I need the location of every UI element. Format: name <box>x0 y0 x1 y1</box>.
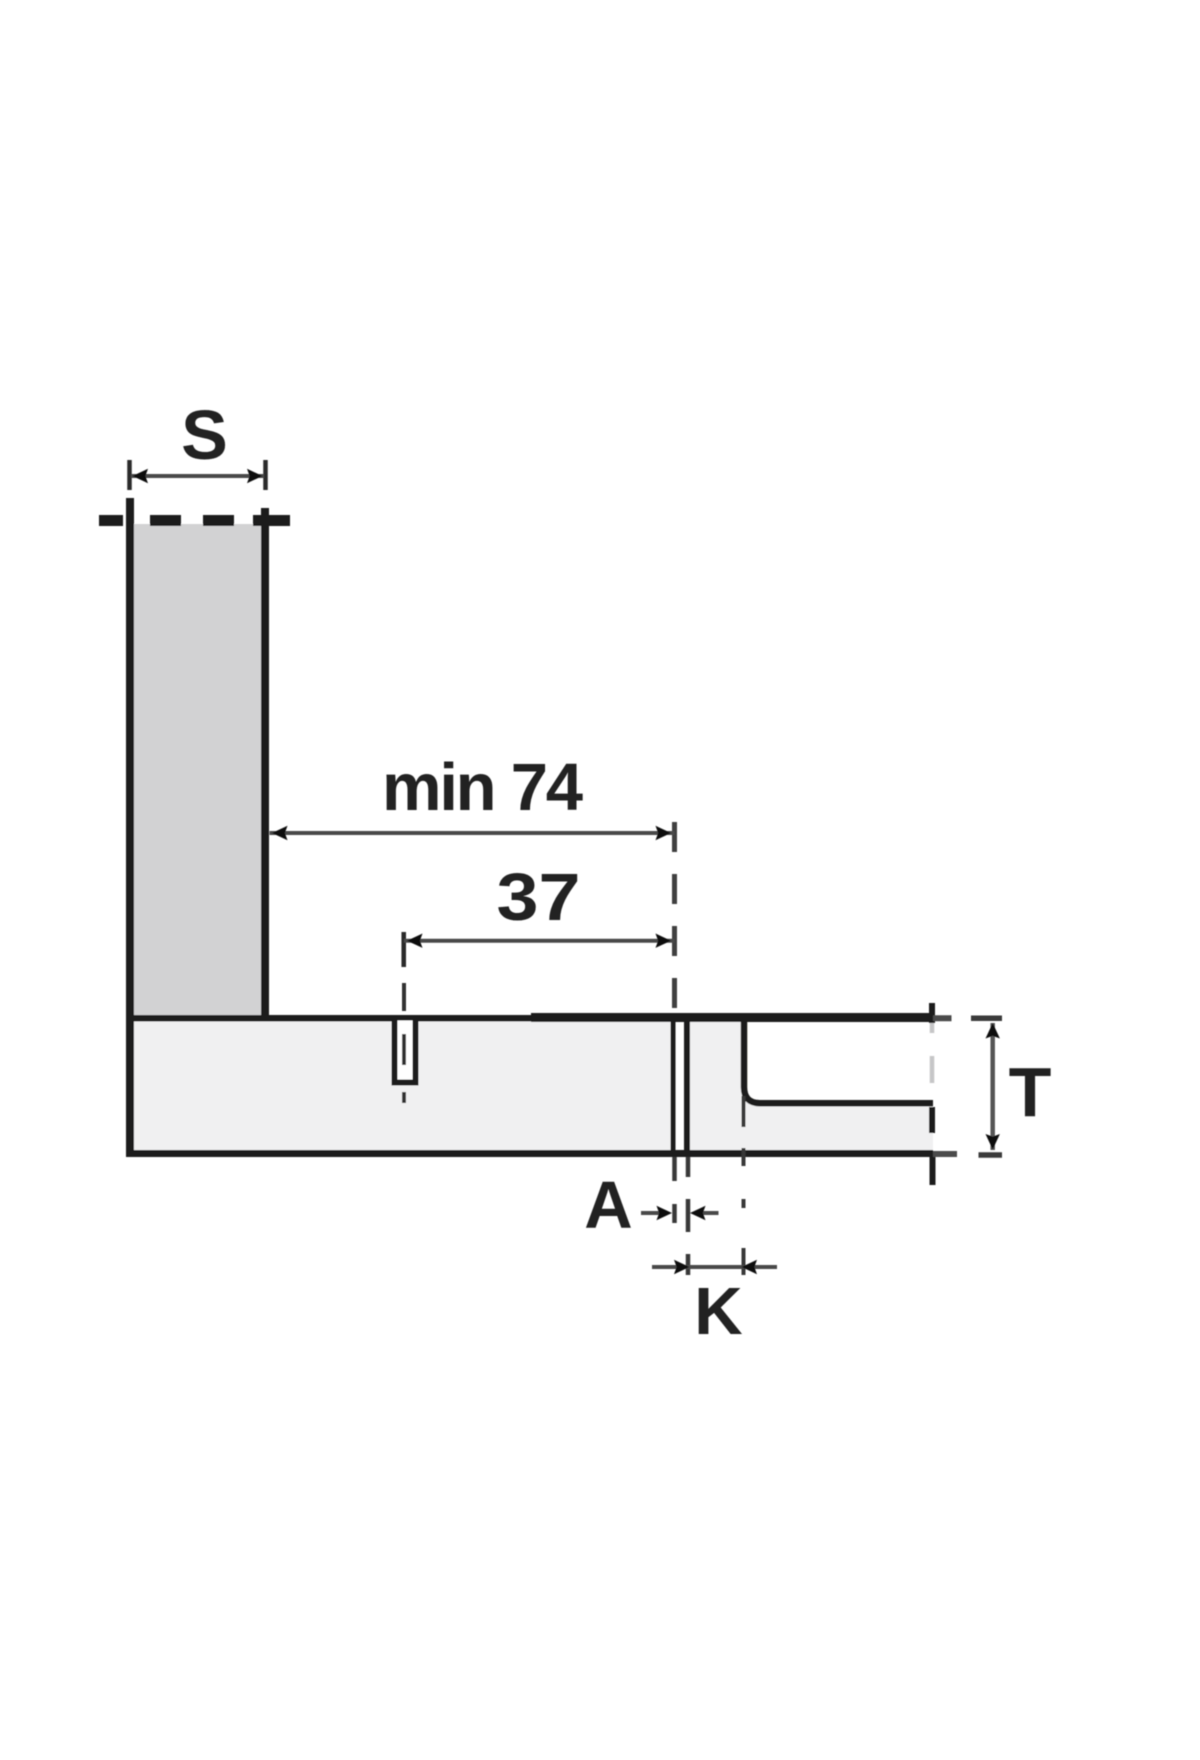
svg-text:A: A <box>584 1168 632 1243</box>
svg-text:S: S <box>181 396 228 474</box>
svg-text:min 74: min 74 <box>382 750 583 825</box>
svg-text:K: K <box>694 1274 742 1349</box>
svg-text:T: T <box>1009 1053 1052 1131</box>
svg-text:37: 37 <box>497 860 581 935</box>
